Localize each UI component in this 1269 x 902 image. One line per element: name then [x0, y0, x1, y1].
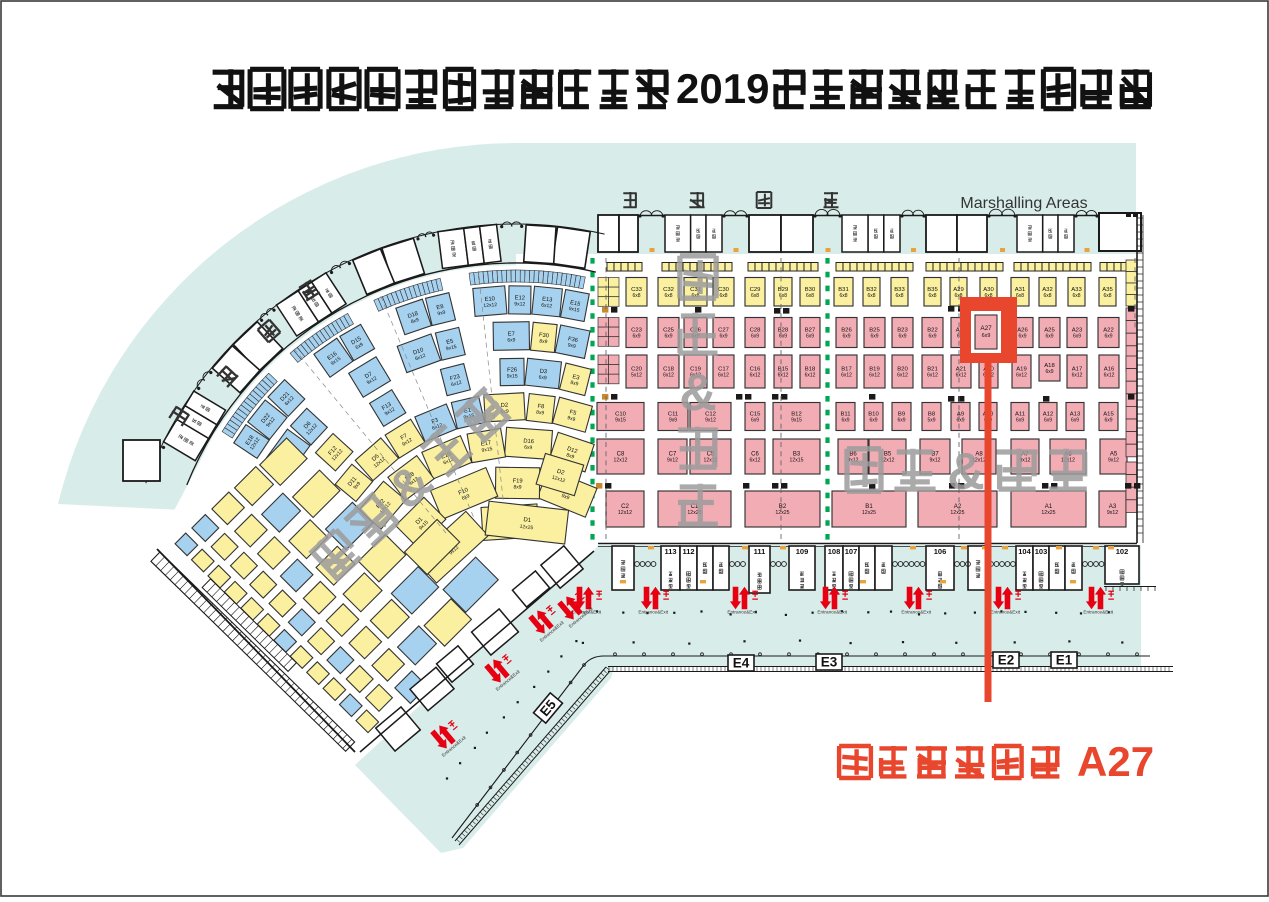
- svg-text:6x12: 6x12: [718, 373, 729, 379]
- svg-text:C8: C8: [617, 452, 625, 458]
- svg-text:6x9: 6x9: [632, 334, 640, 340]
- svg-text:6x9: 6x9: [1016, 418, 1024, 424]
- svg-text:6x9: 6x9: [1071, 418, 1079, 424]
- svg-text:9x12: 9x12: [667, 458, 678, 464]
- svg-text:12x15: 12x15: [790, 458, 804, 464]
- svg-text:A5: A5: [1110, 452, 1118, 458]
- svg-text:D1: D1: [523, 517, 532, 524]
- svg-text:B6: B6: [849, 452, 857, 458]
- svg-text:6x9: 6x9: [956, 418, 964, 424]
- svg-text:6x9: 6x9: [538, 375, 547, 382]
- svg-text:9x15: 9x15: [791, 418, 802, 424]
- svg-text:E2: E2: [998, 653, 1015, 668]
- svg-text:6x9: 6x9: [507, 337, 515, 343]
- svg-text:B5: B5: [884, 452, 892, 458]
- svg-text:Entrance&Exit: Entrance&Exit: [817, 610, 847, 615]
- svg-text:A1: A1: [1045, 503, 1053, 510]
- svg-text:6x12: 6x12: [841, 373, 852, 379]
- svg-text:109: 109: [796, 547, 809, 556]
- svg-text:B1: B1: [865, 503, 873, 510]
- svg-text:C7: C7: [669, 452, 677, 458]
- svg-text:111: 111: [754, 547, 766, 556]
- svg-text:6x12: 6x12: [869, 373, 880, 379]
- svg-text:6x9: 6x9: [751, 418, 759, 424]
- svg-text:6x12: 6x12: [927, 373, 938, 379]
- svg-text:6x8: 6x8: [719, 293, 727, 299]
- svg-text:8x9: 8x9: [536, 410, 545, 417]
- svg-text:6x12: 6x12: [1104, 373, 1115, 379]
- svg-text:6x9: 6x9: [1044, 418, 1052, 424]
- svg-text:6x9: 6x9: [1073, 334, 1081, 340]
- svg-text:9x9: 9x9: [669, 418, 677, 424]
- svg-text:Entrance&Exit: Entrance&Exit: [990, 610, 1020, 615]
- svg-text:6x12: 6x12: [1016, 373, 1027, 379]
- svg-text:6x9: 6x9: [779, 334, 787, 340]
- svg-text:6x8: 6x8: [895, 293, 903, 299]
- svg-text:6x12: 6x12: [778, 373, 789, 379]
- svg-text:E3: E3: [821, 655, 838, 670]
- svg-text:12x12: 12x12: [483, 302, 497, 309]
- svg-text:103: 103: [1035, 547, 1048, 556]
- svg-text:5x12: 5x12: [631, 373, 642, 379]
- svg-text:6x9: 6x9: [719, 334, 727, 340]
- svg-text:E1: E1: [1056, 653, 1073, 668]
- svg-text:C2: C2: [621, 503, 629, 510]
- svg-text:9x15: 9x15: [507, 373, 518, 379]
- svg-text:6x9: 6x9: [898, 334, 906, 340]
- svg-text:Entrance&Exit: Entrance&Exit: [638, 610, 668, 615]
- svg-text:104: 104: [1018, 547, 1031, 556]
- svg-text:6x9: 6x9: [870, 334, 878, 340]
- svg-text:6x9: 6x9: [1104, 334, 1112, 340]
- svg-text:Entrance&Exit: Entrance&Exit: [901, 610, 931, 615]
- svg-text:6x9: 6x9: [1045, 334, 1053, 340]
- svg-text:Entrance&Exit: Entrance&Exit: [727, 610, 757, 615]
- svg-text:102: 102: [1116, 547, 1129, 556]
- svg-text:6x12: 6x12: [897, 373, 908, 379]
- svg-text:B2: B2: [779, 503, 787, 510]
- svg-text:6x9: 6x9: [841, 418, 849, 424]
- svg-text:12x25: 12x25: [1041, 510, 1055, 516]
- svg-text:6x8: 6x8: [928, 293, 936, 299]
- svg-text:6x8: 6x8: [1016, 293, 1024, 299]
- svg-text:8x9: 8x9: [513, 484, 521, 490]
- svg-text:6x9: 6x9: [806, 334, 814, 340]
- svg-text:12x12: 12x12: [614, 458, 628, 464]
- svg-text:6x8: 6x8: [1072, 293, 1080, 299]
- svg-text:6x12: 6x12: [805, 373, 816, 379]
- svg-text:6x9: 6x9: [1018, 334, 1026, 340]
- svg-text:6x8: 6x8: [779, 293, 787, 299]
- svg-text:108: 108: [828, 547, 841, 556]
- svg-text:E4: E4: [733, 656, 750, 671]
- svg-text:113: 113: [664, 547, 676, 556]
- svg-text:A27: A27: [980, 325, 992, 332]
- svg-text:6x9: 6x9: [1045, 369, 1053, 375]
- svg-text:6x9: 6x9: [664, 334, 672, 340]
- svg-text:8x9: 8x9: [539, 338, 548, 345]
- svg-text:5x9: 5x9: [927, 418, 935, 424]
- svg-text:6x12: 6x12: [956, 373, 967, 379]
- svg-text:C6: C6: [751, 452, 759, 458]
- svg-text:6x9: 6x9: [842, 334, 850, 340]
- svg-text:6x12: 6x12: [663, 373, 674, 379]
- svg-text:9x15: 9x15: [615, 418, 626, 424]
- svg-text:6x8: 6x8: [1043, 293, 1051, 299]
- svg-text:2019: 2019: [676, 65, 769, 112]
- svg-text:6x8: 6x8: [867, 293, 875, 299]
- svg-text:6x8: 6x8: [632, 293, 640, 299]
- svg-text:6x8: 6x8: [806, 293, 814, 299]
- svg-text:12x12: 12x12: [618, 510, 632, 516]
- svg-text:&: &: [679, 364, 717, 422]
- svg-text:A3: A3: [1109, 503, 1117, 510]
- svg-text:6x12: 6x12: [541, 302, 553, 309]
- svg-text:6x12: 6x12: [1072, 373, 1083, 379]
- svg-text:&: &: [947, 443, 985, 501]
- svg-text:9x12: 9x12: [514, 301, 525, 307]
- svg-text:9x12: 9x12: [929, 458, 940, 464]
- svg-text:9x12: 9x12: [1108, 458, 1119, 464]
- svg-text:Entrance&Exit: Entrance&Exit: [1083, 610, 1113, 615]
- svg-text:6x8: 6x8: [839, 293, 847, 299]
- svg-text:6x12: 6x12: [750, 373, 761, 379]
- svg-text:6x9: 6x9: [928, 334, 936, 340]
- svg-text:A2: A2: [954, 503, 962, 510]
- svg-text:6x9: 6x9: [982, 333, 991, 339]
- svg-text:6x8: 6x8: [751, 293, 759, 299]
- svg-text:6x9: 6x9: [869, 418, 877, 424]
- svg-text:9x12: 9x12: [1107, 510, 1118, 516]
- svg-text:107: 107: [845, 547, 858, 556]
- svg-text:106: 106: [934, 547, 947, 556]
- svg-text:6x8: 6x8: [664, 293, 672, 299]
- svg-text:12x25: 12x25: [950, 510, 964, 516]
- svg-text:12x25: 12x25: [775, 510, 789, 516]
- svg-text:12x25: 12x25: [862, 510, 876, 516]
- svg-text:A27: A27: [1077, 738, 1154, 785]
- svg-text:6x8: 6x8: [1103, 293, 1111, 299]
- svg-text:6x9: 6x9: [751, 334, 759, 340]
- svg-text:6x9: 6x9: [897, 418, 905, 424]
- svg-text:Marshalling Areas: Marshalling Areas: [960, 195, 1087, 212]
- svg-text:B3: B3: [793, 452, 801, 458]
- svg-text:6x12: 6x12: [749, 458, 760, 464]
- svg-text:6x9: 6x9: [1104, 418, 1112, 424]
- svg-text:112: 112: [682, 547, 694, 556]
- svg-text:6x9: 6x9: [524, 445, 533, 452]
